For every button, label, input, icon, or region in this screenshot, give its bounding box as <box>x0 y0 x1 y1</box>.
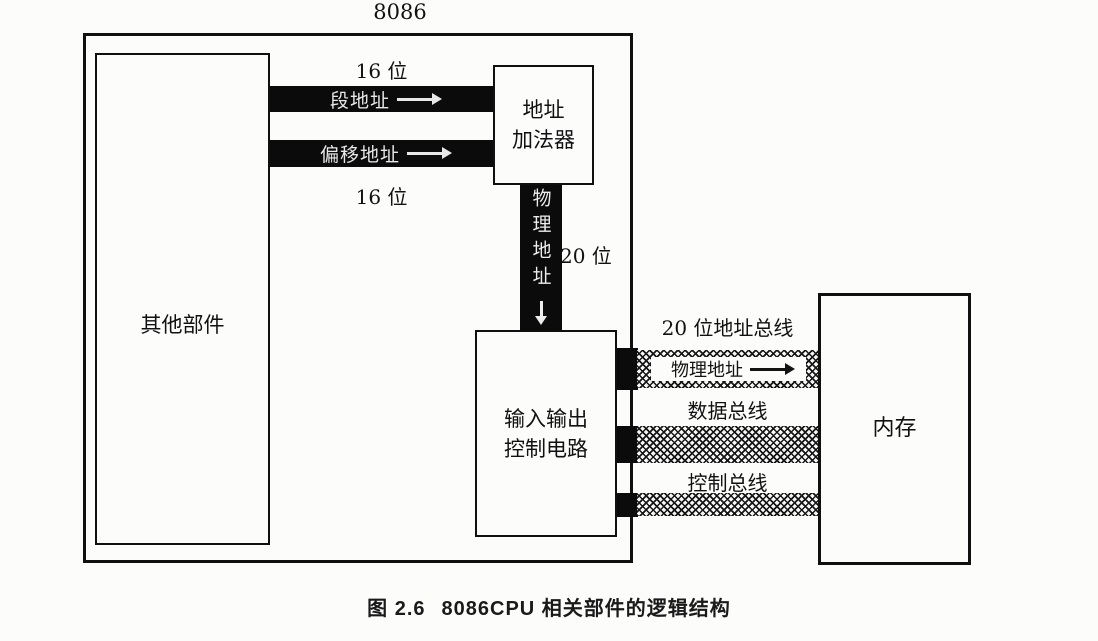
segment-width-label: 16 位 <box>270 55 493 84</box>
address-bus-title: 20 位地址总线 <box>637 312 818 341</box>
physical-address-vertical-arrow: 物理地址 <box>520 185 562 331</box>
memory-box: 内存 <box>818 293 971 565</box>
offset-address-label: 偏移地址 <box>320 140 400 167</box>
right-arrow-icon <box>397 98 433 101</box>
other-components-box: 其他部件 <box>95 53 270 545</box>
figure-number: 图 2.6 <box>367 592 425 621</box>
address-bus-stub <box>617 348 638 390</box>
address-adder-label-line2: 加法器 <box>512 125 575 155</box>
data-bus <box>637 426 818 463</box>
memory-label: 内存 <box>872 414 916 444</box>
data-bus-title: 数据总线 <box>637 395 818 424</box>
io-control-label-line1: 输入输出 <box>504 404 588 434</box>
other-components-label: 其他部件 <box>141 310 225 340</box>
chip-label: 8086 <box>340 0 460 24</box>
offset-width-label: 16 位 <box>270 181 493 210</box>
control-bus <box>637 493 818 516</box>
right-arrow-icon <box>750 368 786 371</box>
address-bus-inner-label: 物理地址 <box>671 356 743 382</box>
io-control-label-line2: 控制电路 <box>504 434 588 464</box>
figure-page: 8086 其他部件 16 位 段地址 偏移地址 16 位 地址 加法器 物理地址… <box>0 0 1098 641</box>
data-bus-stub <box>617 426 638 463</box>
down-arrow-icon <box>540 301 543 317</box>
address-bus-core: 物理地址 <box>651 357 806 381</box>
physical-width-label: 20 位 <box>560 240 620 269</box>
figure-caption: 图 2.6 8086CPU 相关部件的逻辑结构 <box>0 592 1098 621</box>
address-adder-label-line1: 地址 <box>523 95 565 125</box>
segment-address-label: 段地址 <box>330 86 390 113</box>
figure-title: 8086CPU 相关部件的逻辑结构 <box>442 592 731 621</box>
control-bus-stub <box>617 493 638 517</box>
io-control-box: 输入输出 控制电路 <box>475 330 617 537</box>
address-bus: 物理地址 <box>637 350 818 388</box>
physical-address-vertical-label: 物理地址 <box>528 188 555 292</box>
offset-address-arrow: 偏移地址 <box>270 140 493 167</box>
control-bus-title: 控制总线 <box>637 467 818 496</box>
segment-address-arrow: 段地址 <box>270 86 493 112</box>
address-adder-box: 地址 加法器 <box>493 65 594 185</box>
right-arrow-icon <box>407 152 443 155</box>
